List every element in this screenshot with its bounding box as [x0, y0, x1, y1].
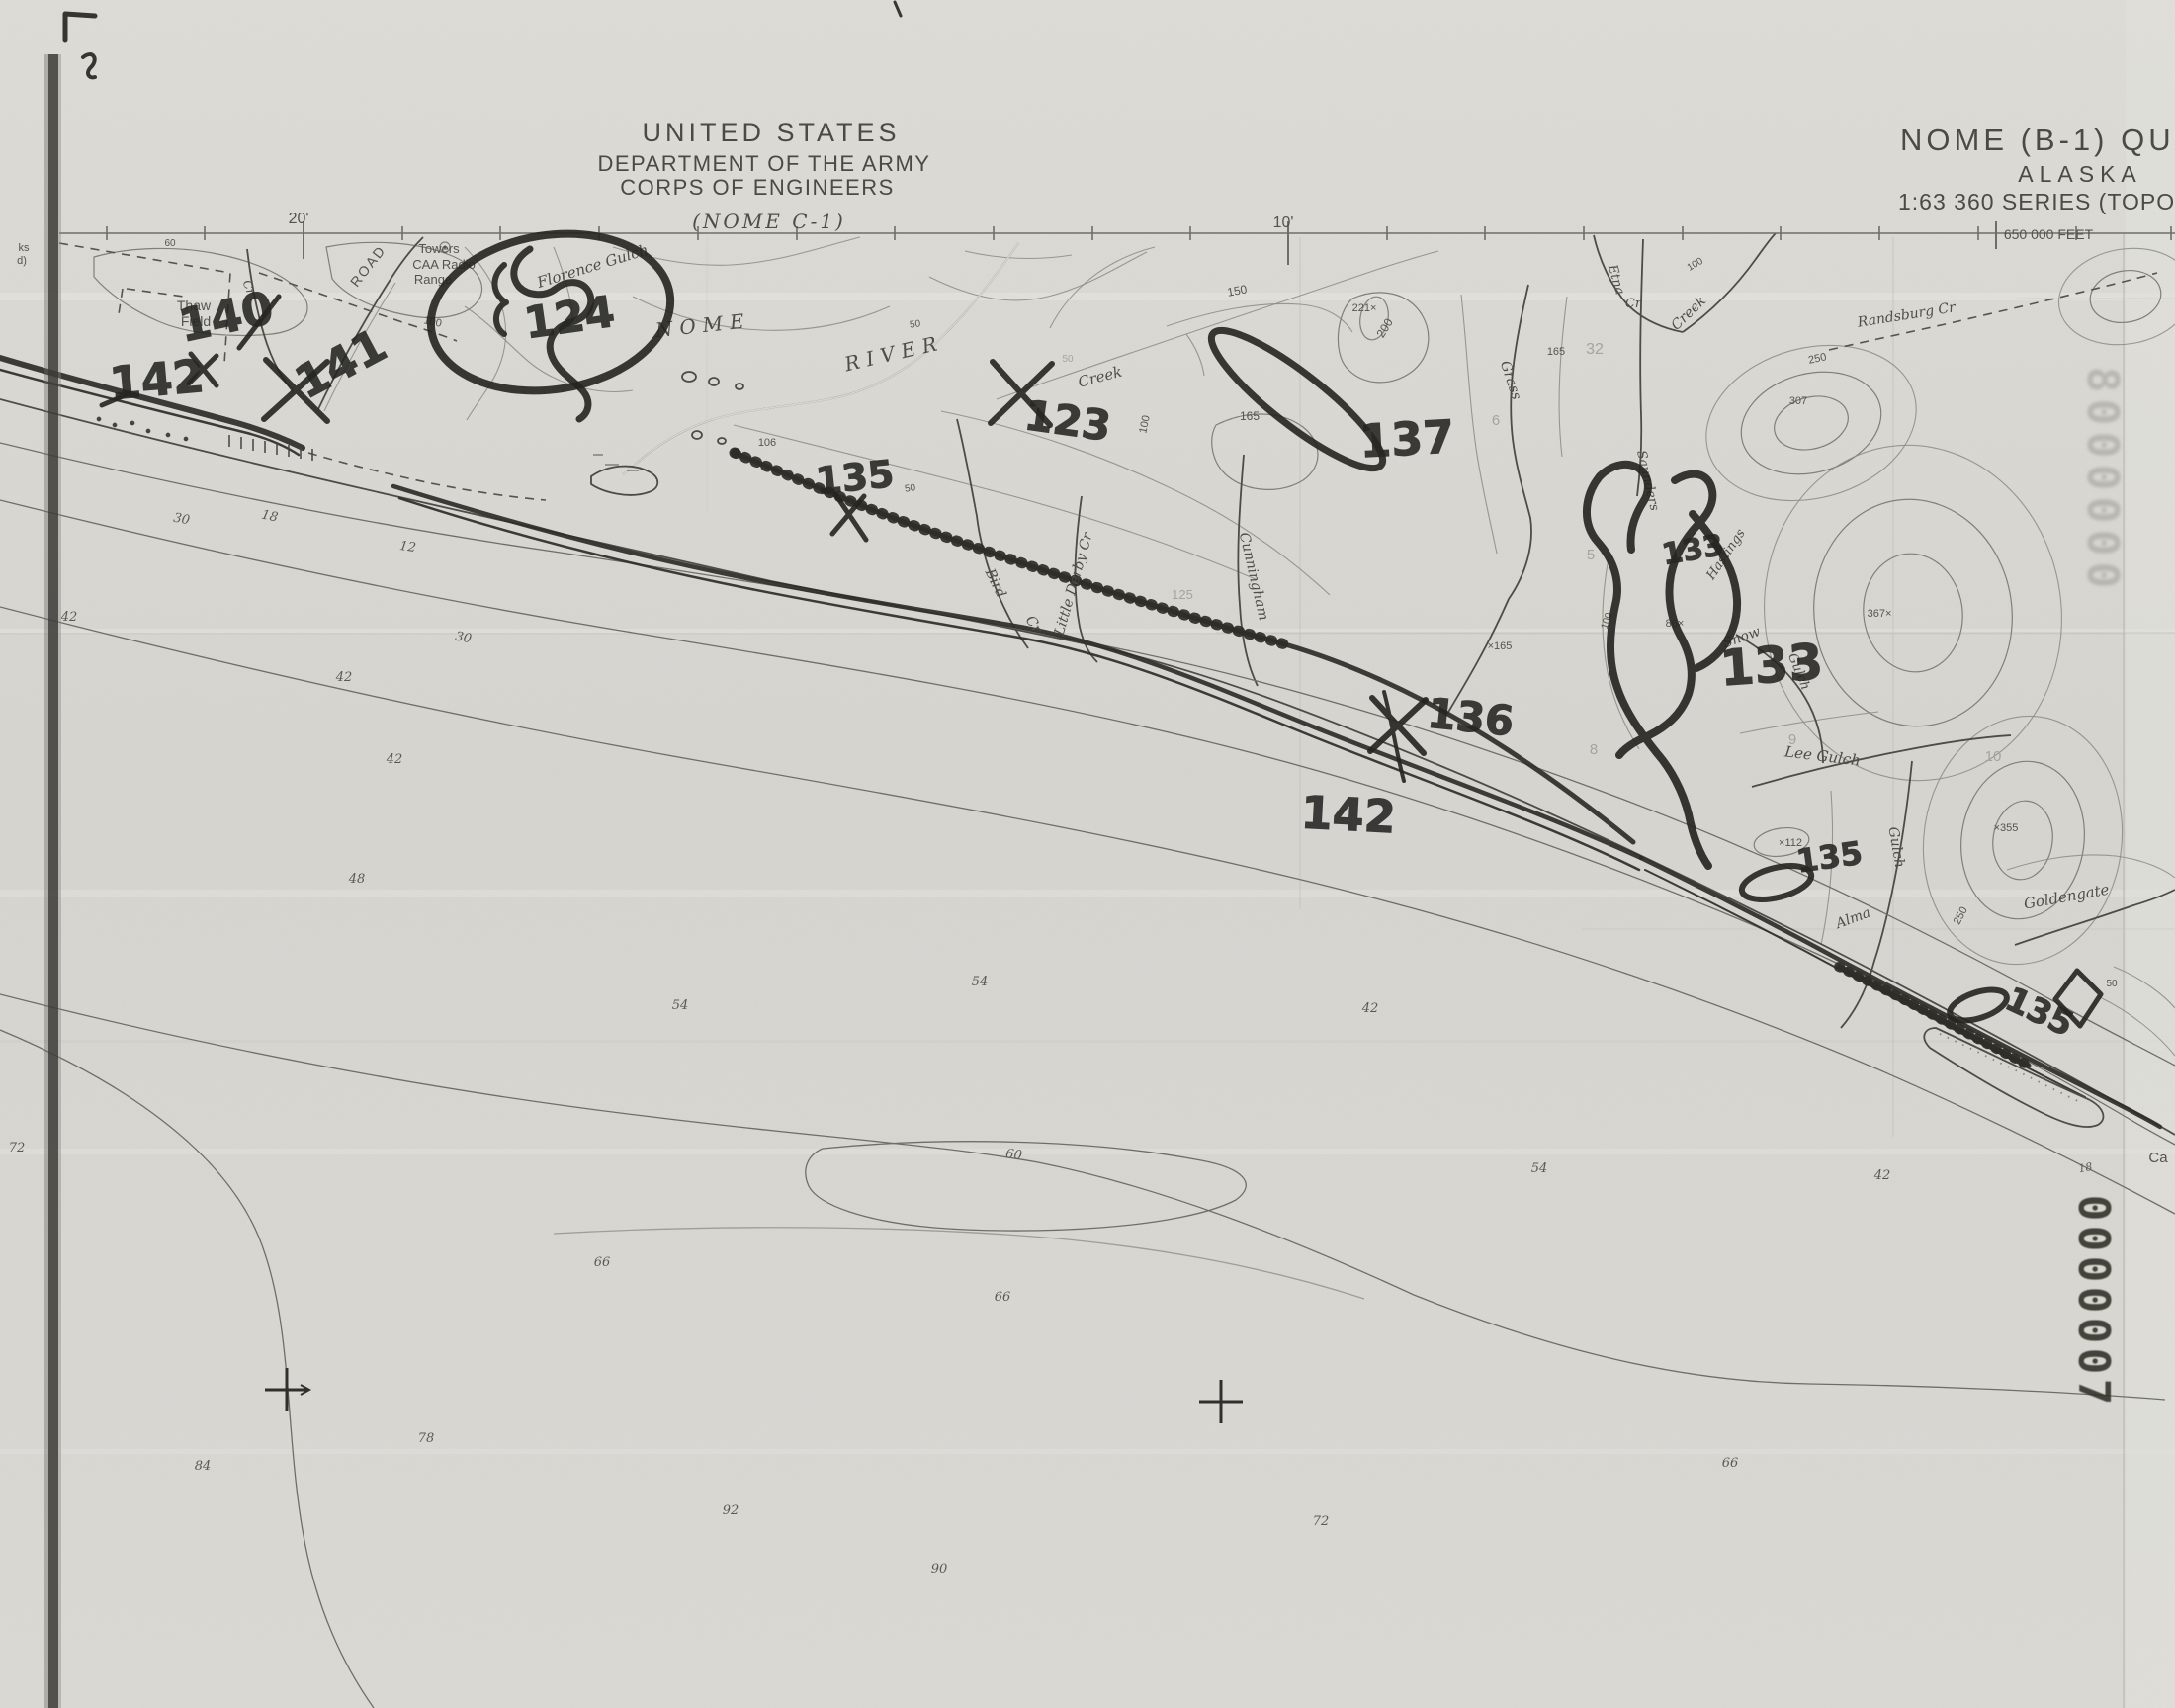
topo-map-scan: UNITED STATES DEPARTMENT OF THE ARMY COR… — [0, 0, 2175, 1708]
scanned-topo-map-page: UNITED STATES DEPARTMENT OF THE ARMY COR… — [0, 0, 2175, 1708]
scanner-edge — [44, 54, 61, 1708]
paper-grain — [0, 0, 2175, 1708]
